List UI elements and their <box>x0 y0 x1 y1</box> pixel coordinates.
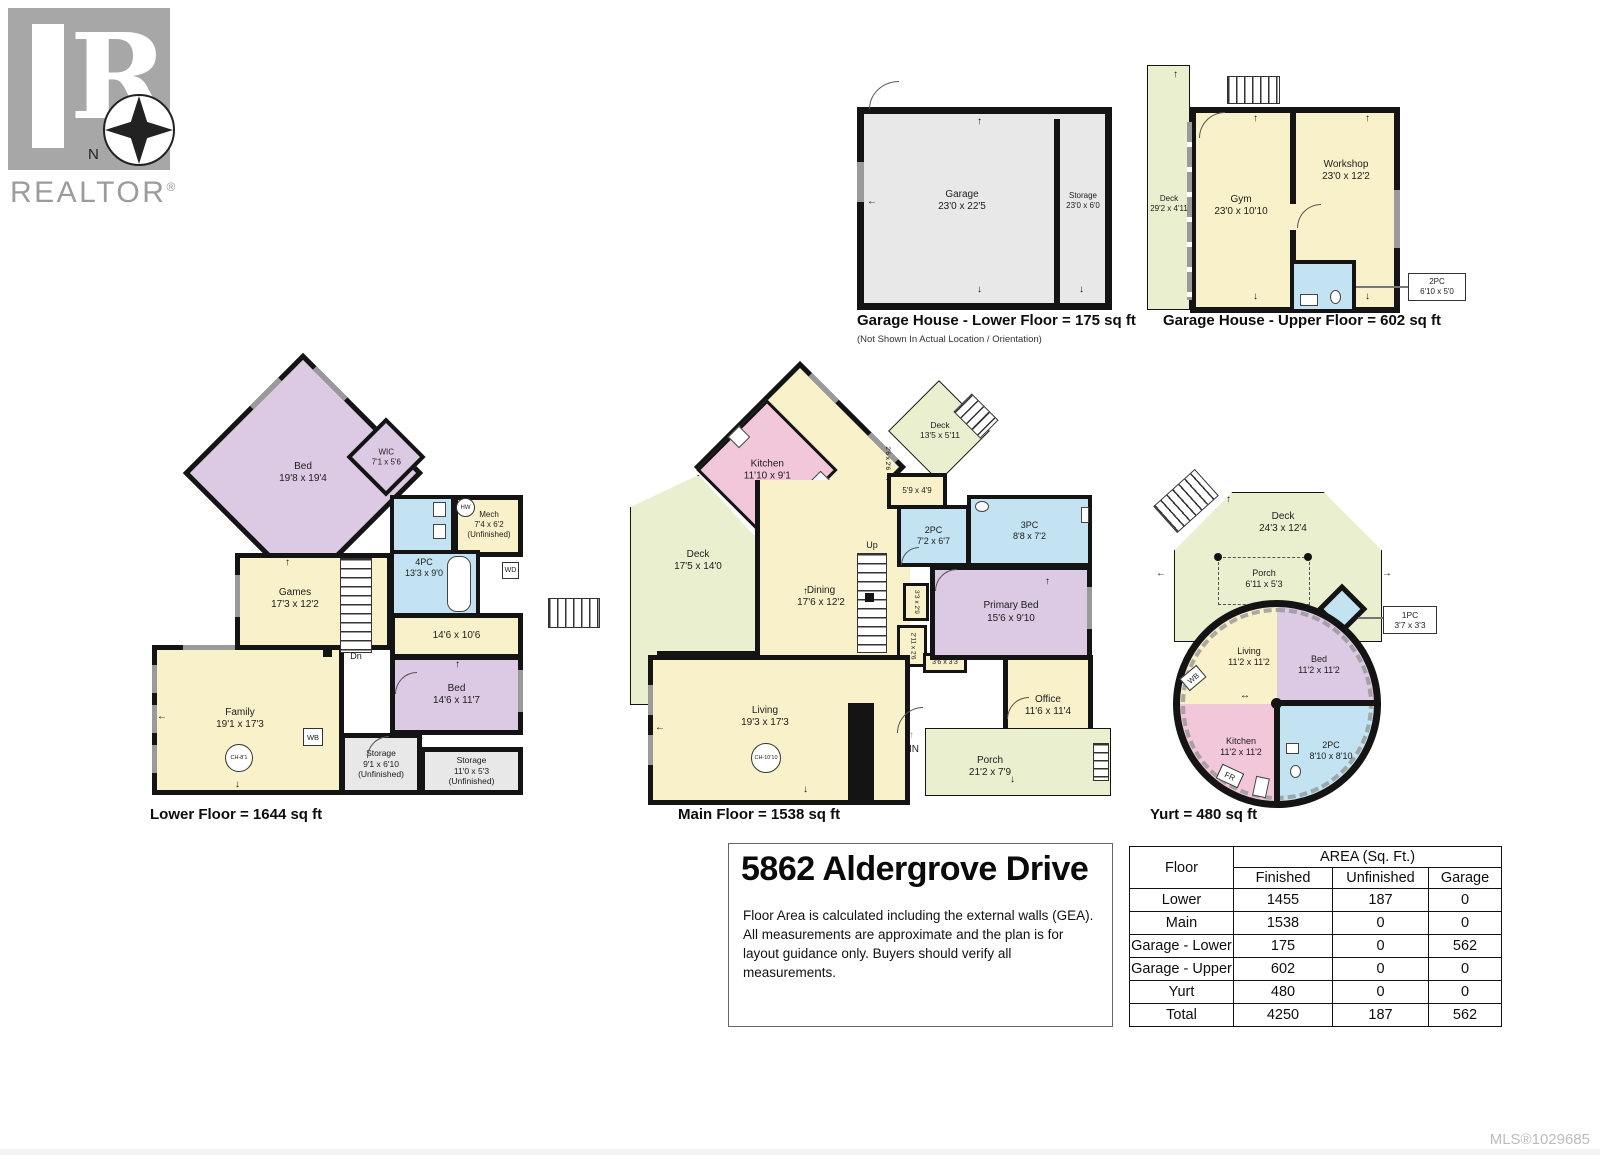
dim-arrow: ← <box>655 723 665 733</box>
dim-arrow: ↑ <box>1365 114 1370 124</box>
compass-icon <box>103 94 175 166</box>
room-yurt-porch-label: Porch 6'11 x 5'3 <box>1226 565 1302 593</box>
mls-number: MLS®1029685 <box>1380 1131 1590 1148</box>
dim-arrow: ↑ <box>1226 495 1231 505</box>
yurt-wall-v <box>1274 704 1280 802</box>
wood-burner-marker: WB <box>303 728 323 746</box>
room-workshop: Workshop 23'0 x 12'2 <box>1310 158 1382 184</box>
plan-lower-floor: Bed 19'8 x 19'4 WIC 7'1 x 5'6 Mech 7'4 x… <box>145 350 540 810</box>
entry-in-label: IN <box>901 743 927 757</box>
plan-main-floor: Deck 17'5 x 14'0 Kitchen 11'10 x 9'1 FR … <box>545 355 1105 810</box>
compass-north-label: N <box>88 146 99 163</box>
dim-arrow: ↓ <box>803 785 808 795</box>
disclaimer: Floor Area is calculated including the e… <box>743 906 1105 983</box>
dim-arrow: ↑ <box>285 558 290 568</box>
toilet-fixture <box>1330 290 1341 304</box>
room-garage: Garage 23'0 x 22'5 <box>912 185 1012 217</box>
th-area: AREA (Sq. Ft.) <box>1234 847 1502 868</box>
table-row: Main153800 <box>1130 912 1502 935</box>
room-games-label: Games 17'3 x 12'2 <box>255 585 335 613</box>
stairs-porch <box>1093 743 1109 781</box>
living-window <box>648 685 653 715</box>
washer-dryer-marker: WD <box>502 562 519 579</box>
table-row: Yurt48000 <box>1130 981 1502 1004</box>
sink-fixture <box>1300 294 1318 306</box>
closet-1: 3'3 x 2'9 <box>903 583 929 621</box>
stairs-garage-upper <box>1227 76 1280 104</box>
games-window <box>235 575 240 617</box>
stairs-up-label: Up <box>859 539 885 551</box>
room-family-label: Family 19'1 x 17'3 <box>200 705 280 733</box>
post-marker <box>323 648 332 657</box>
plan-yurt: Deck 24'3 x 12'4 Porch 6'11 x 5'3 1PC 3'… <box>1130 465 1475 815</box>
room-dining-label: Dining 17'6 x 12'2 <box>783 583 859 611</box>
table-row: Lower14551870 <box>1130 889 1502 912</box>
gym-workshop-wall-upper <box>1290 112 1296 204</box>
page-title: 5862 Aldergrove Drive <box>741 850 1088 889</box>
sink-fixture <box>433 502 446 517</box>
workshop-window <box>1394 190 1400 248</box>
caption-garage-upper: Garage House - Upper Floor = 602 sq ft <box>1163 312 1441 329</box>
room-porch-label: Porch 21'2 x 7'9 <box>945 753 1035 781</box>
plan-garage-house-lower: Garage 23'0 x 22'5 Storage 23'0 x 6'0 ↑ … <box>857 107 1112 310</box>
hot-water-marker: HW <box>456 498 475 517</box>
dim-arrow: ↓ <box>1253 292 1258 302</box>
dim-arrow: ↑ <box>1253 114 1258 124</box>
bed2-window <box>518 670 523 712</box>
floor-plan-sheet: { "logo": { "brand": "REALTOR", "reg": "… <box>0 0 1600 1155</box>
dim-arrow: ↓ <box>1365 292 1370 302</box>
room-gym: Gym 23'0 x 10'10 <box>1205 193 1277 219</box>
family-window <box>152 745 157 773</box>
stairs-deck-left <box>548 598 600 628</box>
room-upper-deck <box>1147 65 1190 310</box>
room-entry: 5'9 x 4'9 <box>887 473 947 509</box>
post-marker <box>865 593 874 602</box>
dim-arrow: ↔ <box>1240 691 1250 701</box>
dim-arrow: ↑ <box>977 117 982 127</box>
room-yurt-2pc-label: 2PC 8'10 x 8'10 <box>1298 737 1364 765</box>
sink-fixture <box>1286 743 1299 754</box>
toilet-fixture <box>975 501 989 512</box>
th-floor: Floor <box>1130 847 1234 889</box>
closet-label: 2'6 x 2'6 <box>884 446 891 470</box>
stairs-up <box>857 553 887 653</box>
dim-arrow: ↓ <box>977 285 982 295</box>
caption-lower-floor: Lower Floor = 1644 sq ft <box>150 806 322 823</box>
garage-window <box>857 162 864 202</box>
th-garage: Garage <box>1429 868 1502 889</box>
area-table: Floor AREA (Sq. Ft.) Finished Unfinished… <box>1129 846 1502 1027</box>
living-north-wall <box>657 651 757 656</box>
room-living-label: Living 19'3 x 17'3 <box>725 703 805 731</box>
dim-arrow: ← <box>867 197 877 207</box>
dim-arrow: ↑ <box>455 660 460 670</box>
callout-leader <box>1356 286 1408 288</box>
ceiling-height-marker: CH-10'10 <box>751 743 781 773</box>
stairs-dn-label: Dn <box>343 650 369 662</box>
yurt-wall-h <box>1277 700 1375 706</box>
room-deck-left-label: Deck 17'5 x 14'0 <box>662 547 734 575</box>
dim-arrow: ↑ <box>803 587 808 597</box>
stairs-down <box>340 558 372 653</box>
room-14-6: 14'6 x 10'6 <box>390 613 523 659</box>
diamond-window <box>808 373 838 403</box>
living-window <box>648 735 653 765</box>
garage-door-arc <box>869 81 899 109</box>
callout-1pc: 1PC 3'7 x 3'3 <box>1383 606 1437 634</box>
dining-west-wall <box>755 480 760 660</box>
realtor-wordmark: REALTOR® <box>10 176 178 210</box>
realtor-logo: R N REALTOR® <box>8 8 198 218</box>
dim-arrow: ↓ <box>235 780 240 790</box>
room-storage-2: Storage 11'0 x 5'3 (Unfinished) <box>420 747 523 795</box>
logo-r-stem <box>32 24 64 148</box>
dim-arrow: ↑ <box>1173 70 1178 80</box>
yurt-center-post <box>1271 698 1282 709</box>
room-yurt-kitchen-label: Kitchen 11'2 x 11'2 <box>1208 733 1274 761</box>
note-garage-lower: (Not Shown In Actual Location / Orientat… <box>857 334 1042 345</box>
dim-arrow: ↑ <box>1045 577 1050 587</box>
caption-main-floor: Main Floor = 1538 sq ft <box>678 806 840 823</box>
callout-leader <box>1358 617 1386 619</box>
room-yurt-living-label: Living 11'2 x 11'2 <box>1218 643 1280 671</box>
porch-post <box>1214 553 1222 561</box>
wall-column <box>848 703 874 803</box>
dim-arrow: → <box>385 562 395 572</box>
ceiling-height-marker: CH-8'1 <box>225 744 253 772</box>
plan-garage-house-upper: Deck 29'2 x 4'11 Gym 23'0 x 10'10 Worksh… <box>1125 62 1470 317</box>
table-row: Garage - Upper60200 <box>1130 958 1502 981</box>
dim-arrow: ← <box>157 712 167 722</box>
caption-yurt: Yurt = 480 sq ft <box>1150 806 1257 823</box>
room-garage-storage: Storage 23'0 x 6'0 <box>1056 185 1110 217</box>
room-yurt-bed-label: Bed 11'2 x 11'2 <box>1288 651 1350 679</box>
primary-window <box>1087 587 1092 629</box>
porch-post <box>1304 553 1312 561</box>
th-finished: Finished <box>1234 868 1333 889</box>
dim-arrow: → <box>1382 569 1392 579</box>
th-unfinished: Unfinished <box>1333 868 1429 889</box>
room-deck-upper-label: Deck 29'2 x 4'11 <box>1138 190 1200 218</box>
info-box: 5862 Aldergrove Drive Floor Area is calc… <box>728 843 1113 1027</box>
table-row: Garage - Lower1750562 <box>1130 935 1502 958</box>
dim-arrow: ← <box>1156 569 1166 579</box>
shower-fixture <box>1081 507 1089 523</box>
family-window-top <box>183 645 238 650</box>
room-yurt-deck-label: Deck 24'3 x 12'4 <box>1247 509 1319 537</box>
bottom-strip <box>0 1149 1600 1155</box>
caption-garage-lower: Garage House - Lower Floor = 175 sq ft <box>857 312 1136 329</box>
family-window <box>152 665 157 693</box>
sink-fixture <box>433 524 446 539</box>
room-4pc-label: 4PC 13'3 x 9'0 <box>393 555 455 581</box>
dim-arrow: ↓ <box>1010 775 1015 785</box>
room-wic-label: WIC 7'1 x 5'6 <box>360 433 413 481</box>
table-row: Total4250187562 <box>1130 1004 1502 1027</box>
toilet-fixture <box>1290 765 1301 778</box>
callout-2pc: 2PC 6'10 x 5'0 <box>1408 273 1466 301</box>
dim-arrow: ↓ <box>1079 285 1084 295</box>
